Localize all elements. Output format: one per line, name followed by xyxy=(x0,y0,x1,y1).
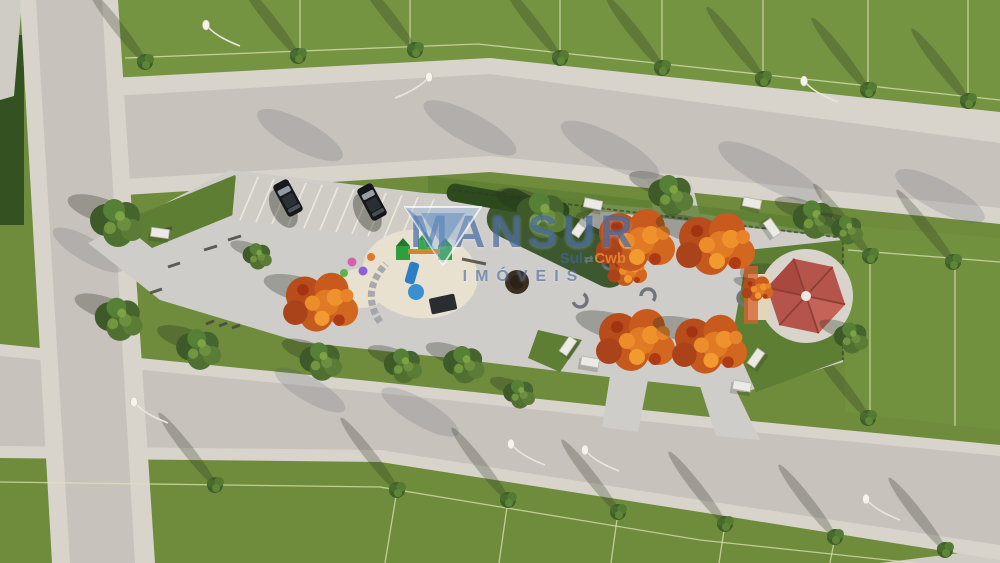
aerial-render: MANSUR Sul⇄Cwb IMÓVEIS xyxy=(0,0,1000,563)
scene-svg xyxy=(0,0,1000,563)
